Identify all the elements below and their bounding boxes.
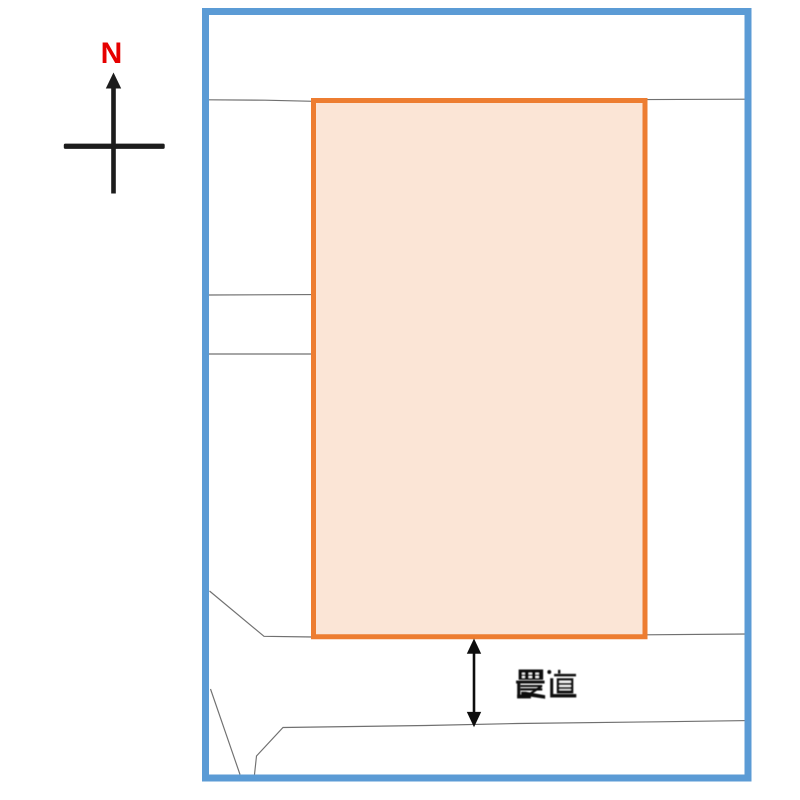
svg-text:N: N: [101, 37, 123, 70]
